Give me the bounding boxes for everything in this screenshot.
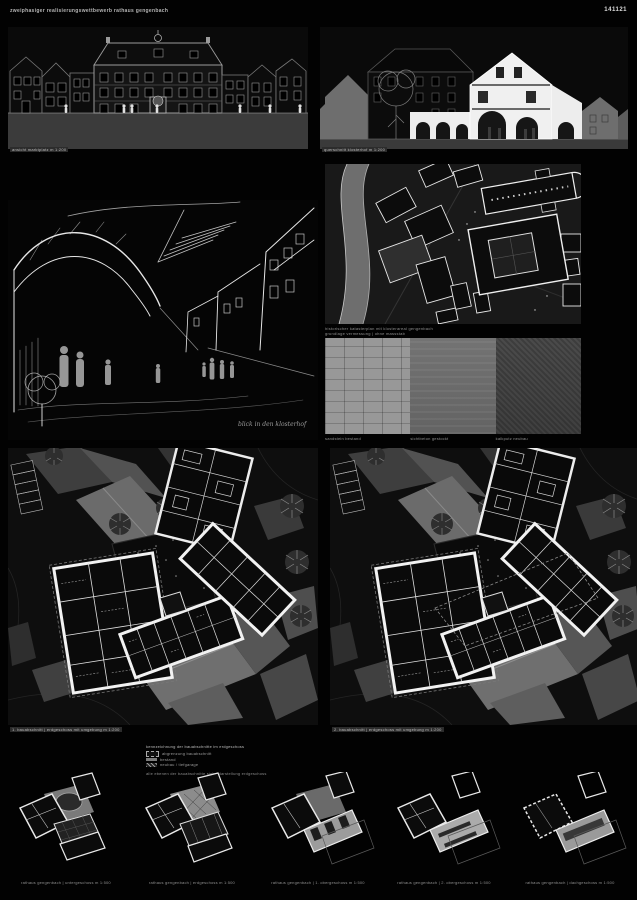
siteplan-caption-2: grundlage vermessung | ohne massstab — [325, 331, 405, 336]
floorplan-dg-drawing — [514, 772, 627, 872]
legend-title: kennzeichnung der bauabschnitte im erdge… — [146, 744, 326, 749]
material-sample-sandstone — [325, 338, 410, 434]
sketch-signature: blick in den klosterhof — [238, 421, 308, 428]
section-caption: querschnitt klosterhof m 1:200 — [322, 147, 387, 152]
floorplan-og2-panel — [388, 772, 501, 872]
legend-label: neubau / tiefgarage — [160, 762, 198, 767]
elevation-panel — [8, 27, 308, 149]
floorplan-ug-panel — [10, 772, 123, 872]
floorplan-caption-og2: rathaus gengenbach | 2. obergeschoss m 1… — [384, 880, 504, 885]
entry-code: 141121 — [604, 7, 627, 13]
groundplan-first-panel — [8, 448, 318, 725]
siteplan-drawing — [325, 164, 581, 324]
elevation-drawing — [8, 27, 308, 149]
material-caption-1: sandstein bestand — [325, 436, 410, 441]
groundplan-second-panel — [330, 448, 637, 725]
sketch-panel: blick in den klosterhof — [8, 200, 318, 440]
floorplan-eg-panel — [136, 772, 249, 872]
groundplan-second-caption: 2. bauabschnitt | erdgeschoss mit umgebu… — [332, 727, 444, 732]
legend-swatch-new — [146, 763, 157, 767]
material-sample-concrete — [410, 338, 495, 434]
groundplan-second-drawing — [330, 448, 637, 725]
floorplan-caption-og1: rathaus gengenbach | 1. obergeschoss m 1… — [258, 880, 378, 885]
material-caption-3: kalkputz neubau — [496, 436, 581, 441]
floorplan-caption-dg: rathaus gengenbach | dachgeschoss m 1:50… — [510, 880, 630, 885]
floorplan-eg-drawing — [136, 772, 249, 872]
floorplan-og1-drawing — [262, 772, 375, 872]
elevation-caption: ansicht marktplatz m 1:200 — [10, 147, 68, 152]
legend: kennzeichnung der bauabschnitte im erdge… — [146, 744, 326, 776]
floorplan-caption-eg: rathaus gengenbach | erdgeschoss m 1:500 — [132, 880, 252, 885]
siteplan-panel — [325, 164, 581, 324]
floorplan-dg-panel — [514, 772, 627, 872]
materials-captions: sandstein bestand sichtbeton gestockt ka… — [325, 436, 581, 441]
material-caption-2: sichtbeton gestockt — [410, 436, 495, 441]
floorplan-caption-ug: rathaus gengenbach | untergeschoss m 1:5… — [6, 880, 126, 885]
legend-swatch-boundary — [146, 751, 159, 757]
board-title: zweiphasiger realisierungswettbewerb rat… — [10, 8, 168, 14]
legend-swatch-existing — [146, 758, 157, 762]
legend-label: abgrenzung bauabschnitt — [162, 751, 212, 756]
floorplan-og1-panel — [262, 772, 375, 872]
legend-label: bestand — [160, 757, 176, 762]
floorplan-ug-drawing — [10, 772, 123, 872]
legend-row: neubau / tiefgarage — [146, 762, 326, 768]
sketch-drawing: blick in den klosterhof — [8, 200, 318, 440]
section-panel — [320, 27, 628, 149]
competition-board: zweiphasiger realisierungswettbewerb rat… — [0, 0, 637, 900]
floorplan-og2-drawing — [388, 772, 501, 872]
material-sample-plaster — [496, 338, 581, 434]
materials-panel — [325, 338, 581, 434]
groundplan-first-caption: 1. bauabschnitt | erdgeschoss mit umgebu… — [10, 727, 122, 732]
groundplan-first-drawing — [8, 448, 318, 725]
section-drawing — [320, 27, 628, 149]
